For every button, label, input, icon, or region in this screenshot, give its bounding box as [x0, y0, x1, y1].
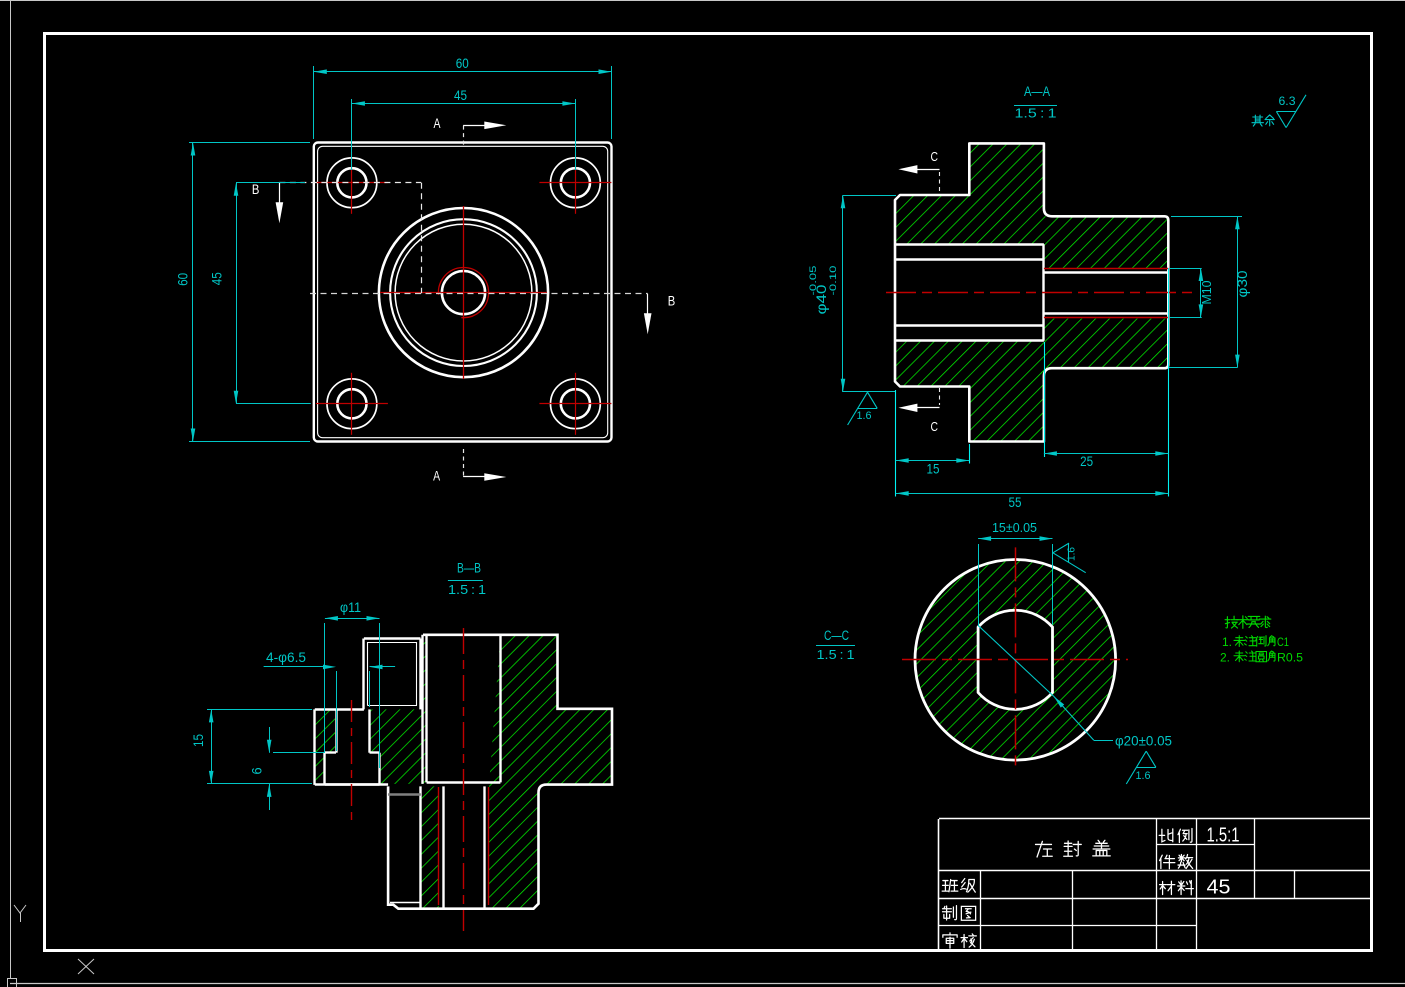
svg-text:C: C: [931, 149, 939, 164]
svg-text:1.5 : 1: 1.5 : 1: [1015, 106, 1057, 121]
svg-text:15: 15: [191, 734, 206, 747]
svg-text:B—B: B—B: [457, 561, 481, 576]
svg-text:4-φ6.5: 4-φ6.5: [266, 650, 306, 665]
svg-text:1.6: 1.6: [1136, 770, 1151, 782]
svg-text:60: 60: [175, 273, 191, 286]
svg-text:6: 6: [250, 768, 265, 775]
svg-text:φ30: φ30: [1234, 270, 1250, 297]
svg-text:55: 55: [1009, 495, 1022, 510]
svg-text:2.: 2.: [1220, 651, 1230, 665]
svg-text:60: 60: [456, 55, 469, 71]
svg-text:1.: 1.: [1222, 635, 1232, 649]
svg-text:1.6: 1.6: [1066, 547, 1077, 561]
svg-text:15±0.05: 15±0.05: [992, 520, 1037, 535]
svg-text:C—C: C—C: [824, 628, 849, 643]
svg-text:25: 25: [1080, 454, 1093, 469]
svg-text:1.6: 1.6: [857, 410, 872, 422]
svg-text:-0.10: -0.10: [828, 266, 839, 296]
svg-text:B: B: [252, 182, 260, 197]
svg-text:1.5 : 1: 1.5 : 1: [817, 647, 855, 662]
svg-text:R0.5: R0.5: [1277, 651, 1303, 665]
svg-text:C: C: [931, 419, 939, 434]
svg-text:15: 15: [927, 462, 940, 477]
svg-text:φ11: φ11: [340, 600, 361, 615]
svg-text:45: 45: [454, 87, 467, 103]
svg-text:M10: M10: [1199, 281, 1214, 305]
svg-text:45: 45: [209, 272, 225, 285]
svg-text:-0.05: -0.05: [808, 266, 819, 296]
svg-text:45: 45: [1207, 876, 1231, 899]
svg-text:1.5:1: 1.5:1: [1207, 824, 1240, 847]
svg-text:1.5 : 1: 1.5 : 1: [448, 582, 486, 597]
svg-text:A—A: A—A: [1024, 84, 1050, 99]
svg-text:A: A: [433, 469, 440, 484]
svg-text:B: B: [668, 294, 676, 309]
svg-text:A: A: [434, 116, 441, 131]
svg-text:6.3: 6.3: [1279, 96, 1296, 108]
svg-text:φ20±0.05: φ20±0.05: [1115, 734, 1172, 749]
svg-text:C1: C1: [1277, 635, 1289, 649]
